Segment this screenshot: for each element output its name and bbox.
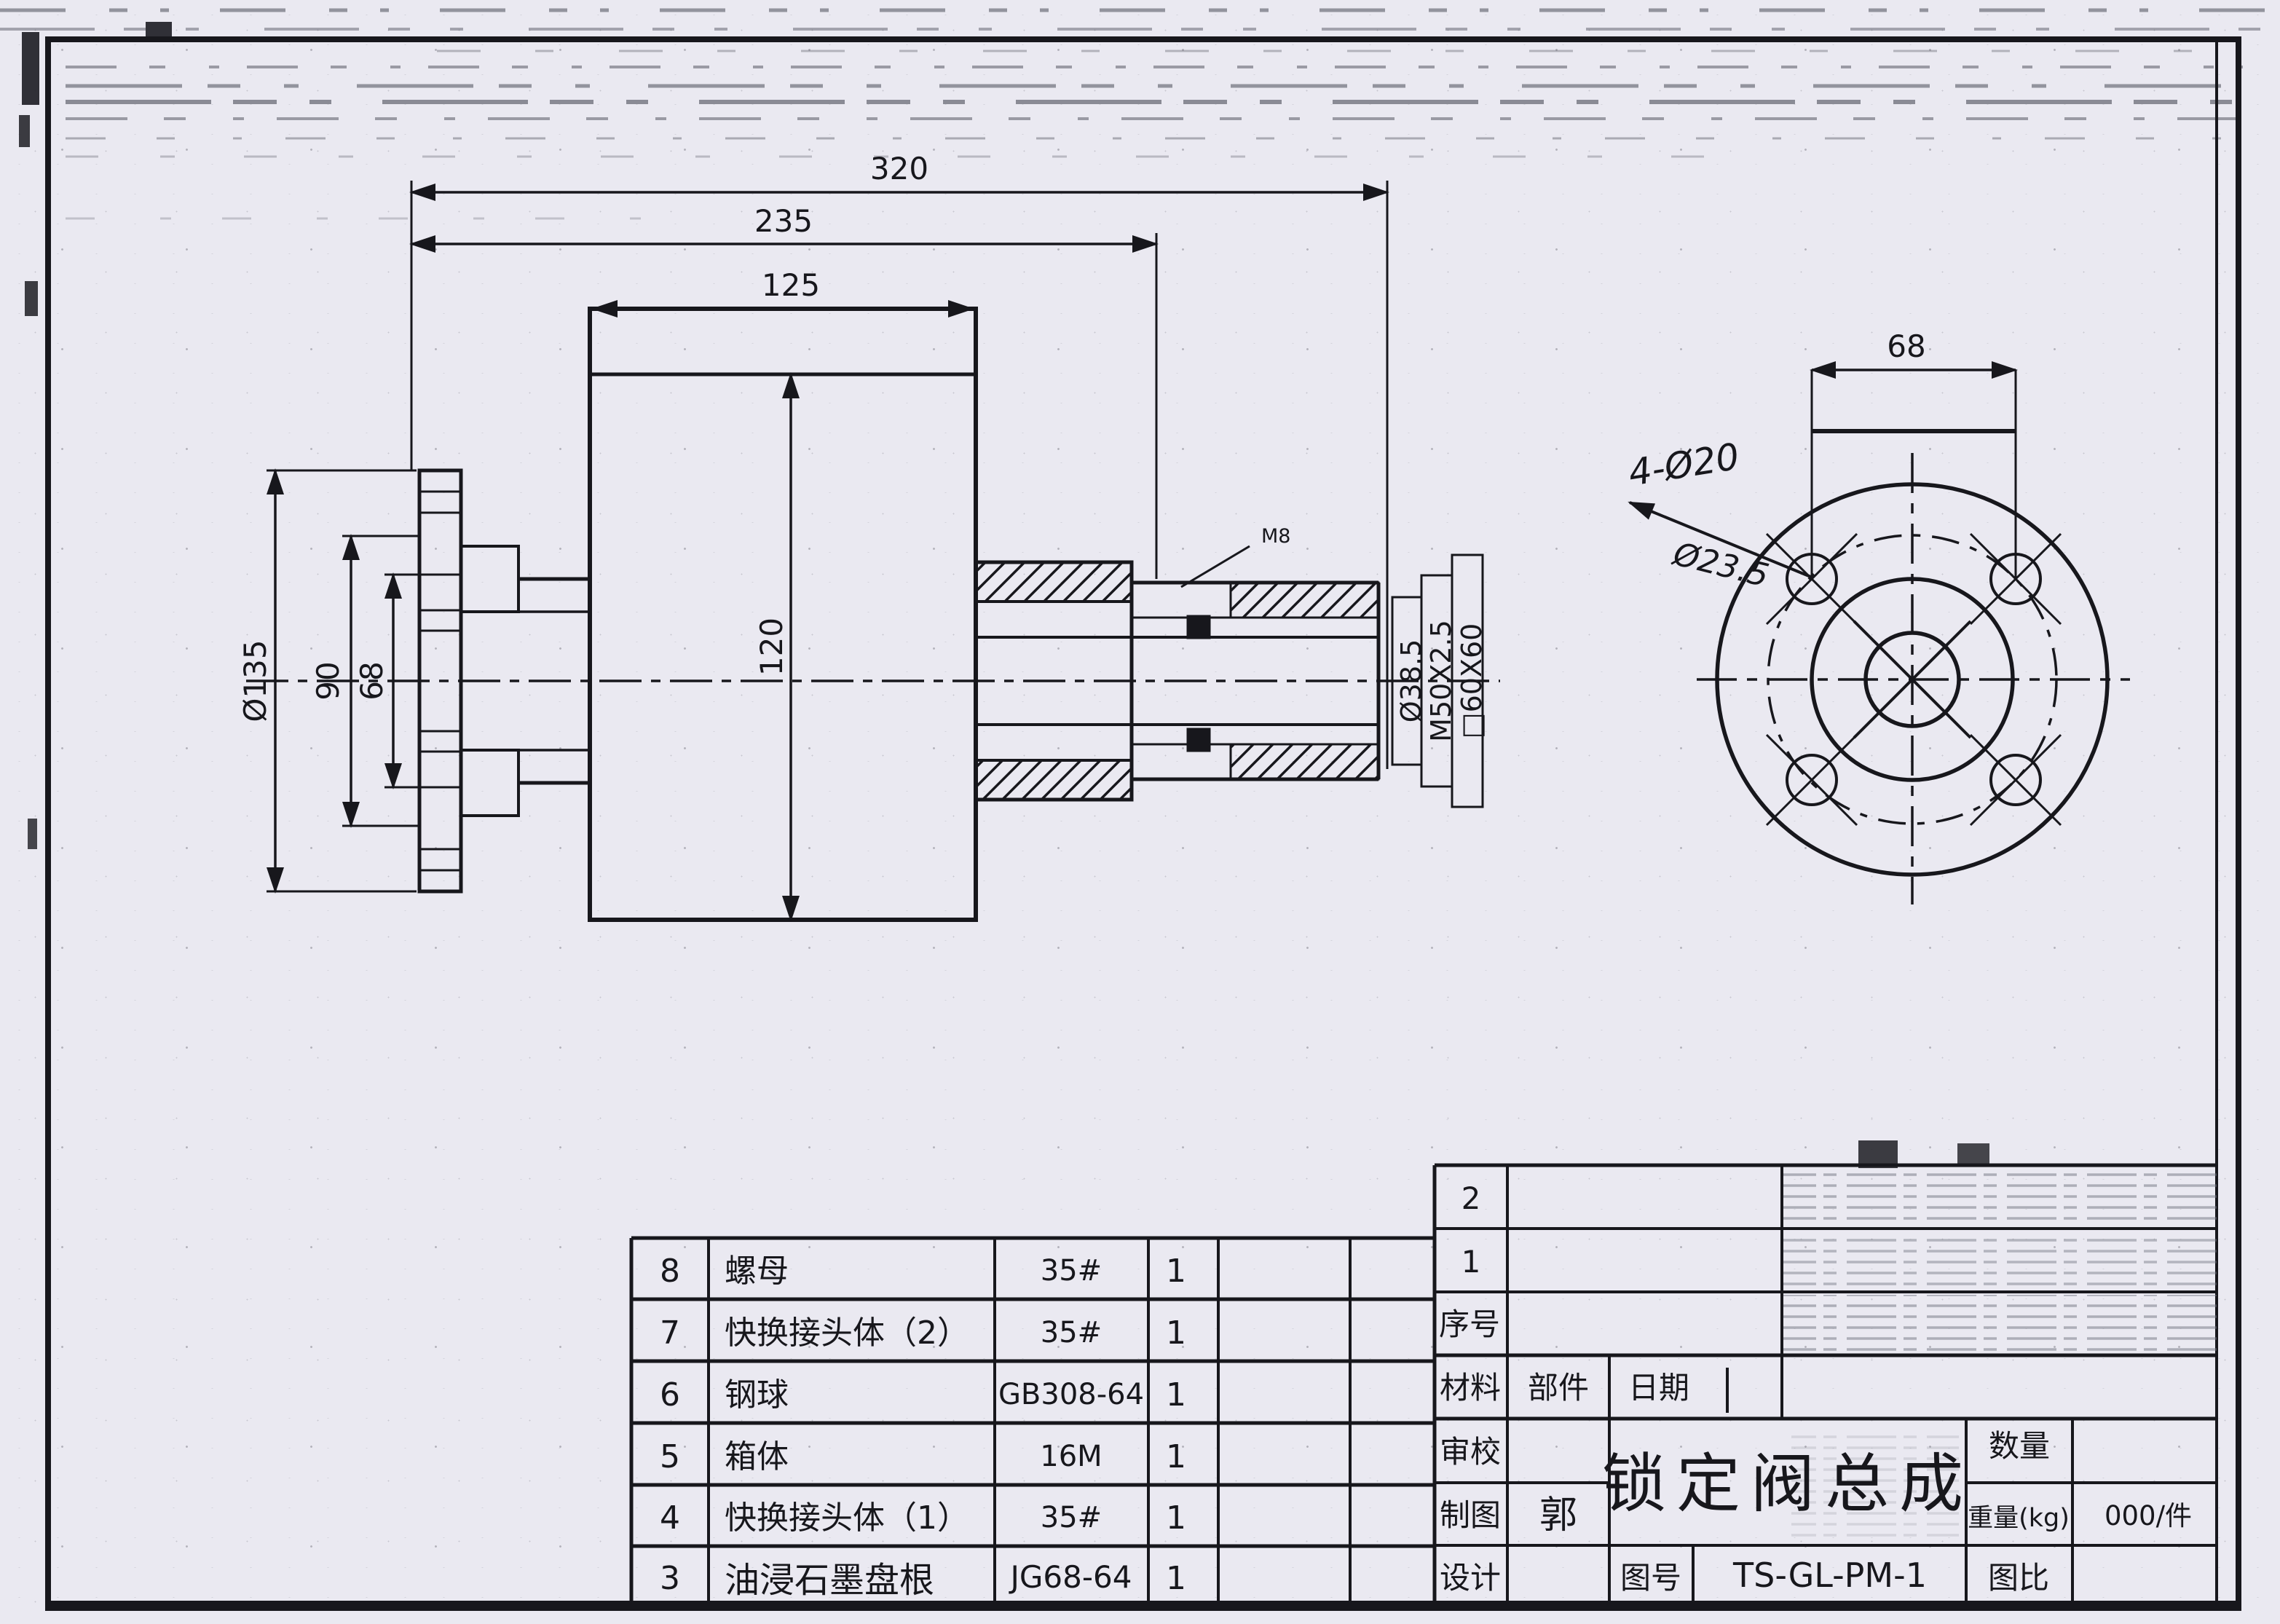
scanned-drawing-sheet: 320 235 125 120 Ø135 90 68 Ø38.5 M50X2.5… [0,0,2280,1624]
part-name: 快换接头体（2） [725,1314,969,1352]
part-no: 8 [660,1253,680,1290]
main-section-view [246,309,1500,920]
part-qty: 1 [1166,1499,1186,1537]
engineering-drawing: 320 235 125 120 Ø135 90 68 Ø38.5 M50X2.5… [0,0,2280,1624]
table-row: 8 螺母 35# 1 [660,1253,1186,1290]
coupler-section-view [976,546,1387,800]
part-name: 钢球 [725,1376,789,1414]
part-name: 快换接头体（1） [725,1499,969,1537]
part-no: 3 [660,1560,680,1597]
dim-overall-length: 320 [870,151,928,186]
part-no: 6 [660,1376,680,1414]
valve-body-outline [590,309,976,920]
seq-row-1: 1 [1462,1244,1481,1280]
part-spec: 35# [1041,1316,1102,1349]
seq-label: 序号 [1439,1306,1500,1342]
dim-square: □60X60 [1456,623,1488,739]
part-label: 部件 [1528,1370,1589,1406]
part-no: 7 [660,1314,680,1352]
part-spec: GB308-64 [998,1378,1144,1411]
part-no: 4 [660,1499,680,1537]
sheet-border [48,39,2238,1608]
parts-table [631,1238,1435,1605]
note-bolt-holes: 4-Ø20 [1625,435,1742,494]
design-label: 设计 [1440,1560,1501,1596]
main-view-dimensions [267,181,1483,920]
part-spec: 35# [1041,1501,1102,1534]
part-spec: 35# [1041,1254,1102,1288]
part-qty: 1 [1166,1253,1186,1290]
drawing-title: 锁定阀总成 [1602,1446,1973,1521]
quantity-label: 数量 [1989,1428,2050,1464]
dim-hole-span: 68 [1887,328,1925,364]
dim-body-height: 120 [754,618,789,676]
table-row: 3 油浸石墨盘根 JG68-64 1 [660,1559,1186,1601]
table-row: 4 快换接头体（1） 35# 1 [660,1499,1186,1537]
dim-body-width: 125 [762,267,820,303]
dim-tap-m8: M8 [1261,525,1290,548]
part-name: 油浸石墨盘根 [725,1560,934,1601]
parts-table-texts: 8 螺母 35# 1 7 快换接头体（2） 35# 1 6 钢球 GB308-6… [660,1253,1186,1601]
steel-ball-upper [1187,615,1210,639]
weight-value: 000/件 [2105,1500,2192,1532]
draft-label: 制图 [1440,1497,1501,1533]
material-label: 材料 [1440,1370,1501,1406]
draft-signature: 郭 [1539,1494,1577,1537]
note-struck-dimension: Ø23.5 [1668,535,1772,595]
weight-label: 重量(kg) [1968,1504,2070,1533]
dim-flange-mid: 90 [310,661,346,700]
date-label: 日期 [1628,1370,1689,1406]
part-qty: 1 [1166,1314,1186,1352]
part-name: 螺母 [725,1253,789,1290]
part-spec: 16M [1040,1440,1102,1473]
scale-label: 图比 [1988,1560,2049,1596]
dim-bore: Ø38.5 [1395,639,1427,723]
table-row: 6 钢球 GB308-64 1 [660,1376,1186,1414]
steel-ball-lower [1187,728,1210,752]
part-qty: 1 [1166,1376,1186,1414]
dim-thread: M50X2.5 [1425,620,1457,742]
dim-to-thread: 235 [754,203,813,239]
part-qty: 1 [1166,1438,1186,1475]
part-spec: JG68-64 [1009,1559,1132,1595]
part-name: 箱体 [725,1438,789,1475]
dim-pipe: 68 [354,661,390,700]
table-row: 7 快换接头体（2） 35# 1 [660,1314,1186,1352]
flange-end-view-texts: 68 4-Ø20 Ø23.5 [1625,328,1925,595]
seq-row-2: 2 [1462,1180,1481,1216]
table-row: 5 箱体 16M 1 [660,1438,1186,1475]
check-label: 审校 [1440,1434,1501,1470]
part-qty: 1 [1166,1560,1186,1597]
dim-flange-od: Ø135 [237,639,273,722]
drawing-no-value: TS-GL-PM-1 [1732,1556,1927,1595]
part-no: 5 [660,1438,680,1475]
main-view-dimension-texts: 320 235 125 120 Ø135 90 68 Ø38.5 M50X2.5… [237,151,1488,742]
drawing-no-label: 图号 [1620,1560,1681,1596]
